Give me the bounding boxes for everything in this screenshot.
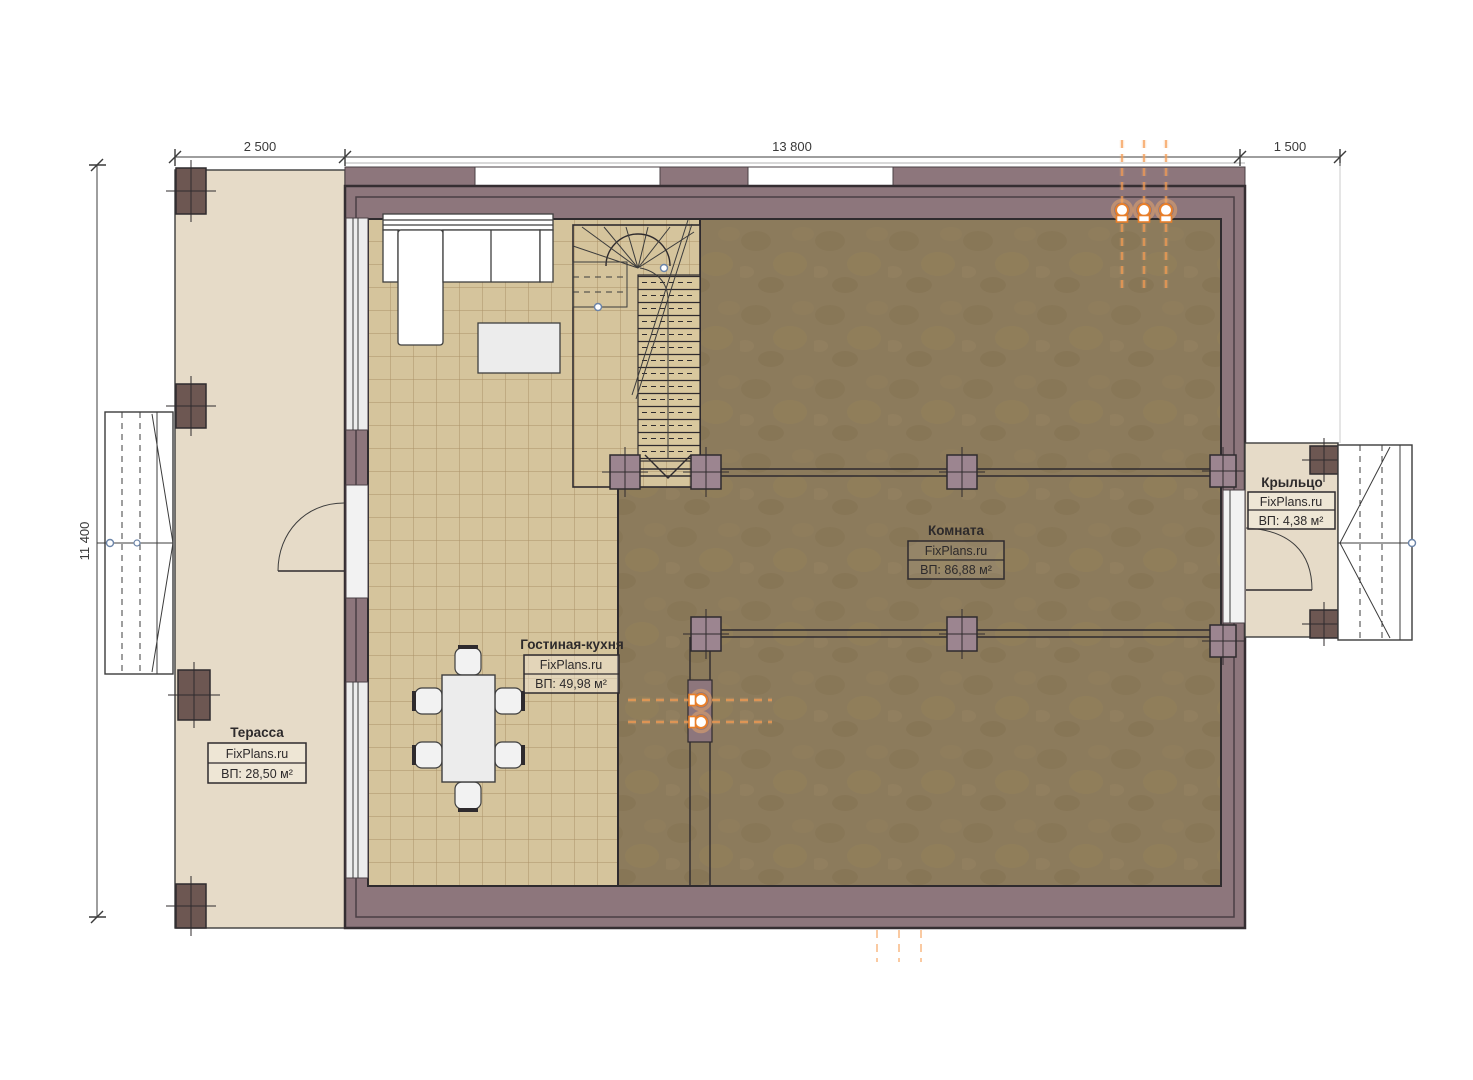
window [346,218,368,430]
wall-segment [660,167,748,186]
terrace-door-opening [346,485,368,598]
dim-left-outer: 11 400 [77,522,92,561]
wall-segment [345,167,475,186]
room-brand: FixPlans.ru [925,544,988,558]
room-area: ВП: 49,98 м² [535,677,607,691]
terrace-area [175,170,345,928]
chair [415,688,442,714]
room-area: ВП: 28,50 м² [221,767,293,781]
window [346,682,368,878]
chair [495,742,522,768]
room-brand: FixPlans.ru [540,658,603,672]
room-name: Комната [928,523,985,538]
terrace-exterior-stairs [97,412,173,674]
walkline-node [134,540,140,546]
porch-area [1245,438,1346,646]
coffee-table [478,323,560,373]
label-living-kitchen: Гостиная-кухня FixPlans.ru ВП: 49,98 м² [520,637,623,693]
chair [495,688,522,714]
left-wall-openings [346,218,368,878]
chair [415,742,442,768]
floor-plan-canvas: 2 500 13 800 1 500 11 400 11 400 [0,0,1473,1080]
walkline-node [661,265,668,272]
walkline-node [1409,540,1416,547]
dim-top-house: 13 800 [772,139,812,154]
room-name: Гостиная-кухня [520,637,623,652]
room-brand: FixPlans.ru [1260,495,1323,509]
staircase [573,220,700,487]
walkline-node [595,304,602,311]
room-area: ВП: 86,88 м² [920,563,992,577]
label-porch: Крыльцо FixPlans.ru ВП: 4,38 м² [1248,475,1335,529]
dim-top-porch: 1 500 [1274,139,1307,154]
room-name: Терасса [230,725,284,740]
dim-top-terrace: 2 500 [244,139,277,154]
floor-plan-drawing: 2 500 13 800 1 500 11 400 11 400 [0,0,1473,1080]
chair [455,782,481,809]
top-wall-band [345,167,1245,186]
room-name: Крыльцо [1261,475,1322,490]
room-brand: FixPlans.ru [226,747,289,761]
wall-segment [893,167,1245,186]
walkline-node [107,540,114,547]
porch-exterior-stairs [1338,445,1416,640]
dining-table [442,675,495,782]
chair [455,648,481,675]
room-area: ВП: 4,38 м² [1259,514,1324,528]
